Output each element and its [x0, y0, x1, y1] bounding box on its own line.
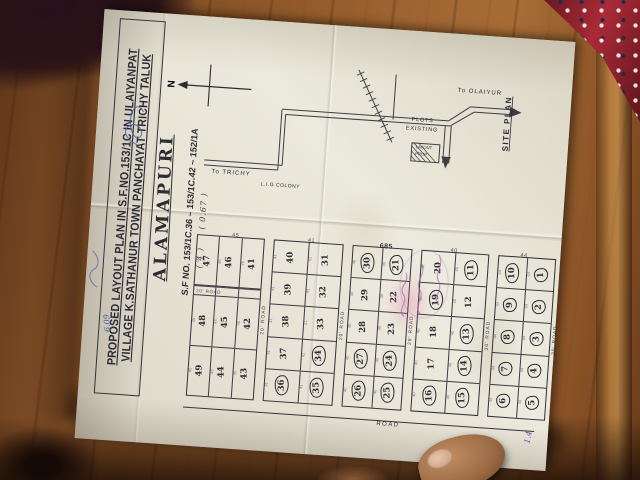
plot-dimension: 45 — [192, 318, 197, 323]
plot-cell-38: 4138 — [268, 305, 304, 339]
internal-road — [216, 287, 238, 298]
plot-number-49: 49 — [193, 362, 205, 380]
plot-cell-3: 443 — [521, 322, 551, 356]
plot-cell-25: 4025 — [372, 377, 403, 410]
plot-number-circled-35: 35 — [309, 378, 323, 398]
plot-cell-10: 4410 — [497, 256, 527, 290]
plot-number-47: 47 — [201, 251, 213, 269]
plot-number-circled-14: 14 — [457, 356, 471, 376]
plot-dimension: 44 — [519, 368, 524, 373]
plot-dimension: 41 — [303, 320, 308, 325]
plot-dimension: 44 — [489, 398, 494, 403]
edge-dimension: 685 — [379, 243, 393, 251]
plot-number-38: 38 — [280, 312, 292, 330]
plot-cell-39: 4139 — [270, 273, 306, 307]
plot-cell-16: 4016 — [411, 379, 446, 412]
road-label: 30' ROAD — [552, 325, 559, 355]
railway-tick — [363, 84, 370, 88]
railway-tick — [387, 137, 394, 141]
edge-dimension: 45 — [232, 233, 240, 239]
layout-plan-paper: PROPOSED LAYOUT PLAN IN S.F.NO.153/1C IN… — [75, 9, 576, 471]
blue-signature-squiggle — [119, 97, 153, 151]
plot-dimension: 40 — [448, 363, 453, 368]
plot-number-18: 18 — [427, 323, 439, 341]
plot-number-circled-6: 6 — [496, 394, 510, 408]
north-letter: N — [166, 80, 177, 88]
plot-number-circled-27: 27 — [353, 349, 367, 369]
plot-number-37: 37 — [278, 345, 290, 363]
plot-dimension: 41 — [273, 254, 278, 259]
plot-number-12: 12 — [463, 293, 475, 311]
plot-dimension: 44 — [526, 271, 531, 276]
plot-number-circled-26: 26 — [351, 381, 365, 401]
plot-dimension: 41 — [308, 256, 313, 261]
plot-cell-45: 4545 — [213, 297, 238, 349]
plot-cell-26: 4026 — [342, 374, 373, 407]
existing-plots-label: EXISTING — [406, 125, 438, 133]
plot-cell-42: 4542 — [235, 298, 260, 350]
plot-cell-36: 4136 — [264, 369, 300, 402]
plot-number-39: 39 — [282, 280, 294, 298]
plot-block-1: 4549454820' ROAD454745444545454645434542… — [186, 234, 265, 400]
plot-number-circled-25: 25 — [380, 383, 394, 403]
plot-dimension: 40 — [377, 326, 382, 331]
plot-number-circled-4: 4 — [527, 364, 541, 378]
plot-grid: 4549454820' ROAD454745444545454645434542… — [186, 234, 565, 421]
internal-road — [238, 288, 260, 299]
plot-number-circled-36: 36 — [275, 376, 289, 396]
plot-number-circled-11: 11 — [464, 260, 478, 280]
plot-number-circled-9: 9 — [503, 298, 517, 312]
plot-number-circled-8: 8 — [501, 330, 515, 344]
plot-cell-32: 4132 — [305, 275, 341, 309]
railway-tick — [357, 71, 364, 75]
plot-dimension: 40 — [343, 388, 348, 393]
plot-number-28: 28 — [356, 318, 368, 336]
plot-number-circled-13: 13 — [460, 324, 474, 344]
railway-tick — [372, 104, 379, 108]
plot-cell-29: 4029 — [349, 278, 380, 312]
plot-number-circled-10: 10 — [505, 263, 519, 283]
plot-cell-47: 4547 — [195, 235, 220, 287]
plot-cell-44: 4544 — [209, 347, 234, 398]
plot-cell-28: 4028 — [347, 310, 378, 344]
plot-dimension: 40 — [375, 358, 380, 363]
plot-cell-6: 446 — [488, 385, 518, 418]
prop-layout-label: LAYOUT — [416, 144, 433, 150]
plot-cell-15: 4015 — [445, 382, 480, 415]
plot-cell-43: 4543 — [231, 349, 256, 400]
plot-dimension: 44 — [491, 366, 496, 371]
plot-number-42: 42 — [241, 315, 253, 333]
railway-tick — [360, 78, 367, 82]
road-label: 20' ROAD — [260, 305, 267, 335]
plot-number-40: 40 — [285, 248, 297, 266]
plot-cell-4: 444 — [519, 355, 549, 389]
plot-number-44: 44 — [216, 363, 228, 381]
plot-number-circled-15: 15 — [455, 388, 469, 408]
plot-number-circled-30: 30 — [360, 253, 374, 273]
railway-tick — [366, 91, 373, 95]
plot-cell-8: 448 — [493, 320, 523, 354]
plot-cell-2: 442 — [523, 290, 553, 324]
plot-dimension: 45 — [240, 261, 245, 266]
plot-number-46: 46 — [223, 253, 235, 271]
plot-number-45: 45 — [219, 313, 231, 331]
blue-swirl — [85, 248, 104, 289]
plot-dimension: 41 — [305, 288, 310, 293]
plot-dimension: 40 — [350, 291, 355, 296]
plot-cell-31: 4131 — [307, 243, 343, 277]
plot-dimension: 41 — [264, 382, 269, 387]
to-trichy-label: To TRICHY — [211, 169, 251, 178]
plot-cell-48: 4548 — [190, 295, 215, 347]
railway-tick — [384, 130, 391, 134]
plot-dimension: 41 — [266, 350, 271, 355]
plot-dimension: 40 — [372, 390, 377, 395]
plot-dimension: 45 — [188, 368, 193, 373]
railway-tick — [381, 124, 388, 128]
hatch-line — [411, 156, 416, 161]
plot-dimension: 45 — [233, 371, 238, 376]
plot-dimension: 40 — [414, 361, 419, 366]
plot-number-circled-24: 24 — [383, 351, 397, 371]
plot-cell-35: 4135 — [298, 371, 334, 404]
plot-number-41: 41 — [246, 255, 258, 273]
plot-cell-1: 441 — [525, 258, 555, 292]
plot-dimension: 44 — [517, 400, 522, 405]
plot-number-17: 17 — [425, 355, 437, 373]
purple-stamp-writing — [393, 242, 462, 326]
plot-cell-5: 445 — [517, 387, 547, 420]
plot-number-31: 31 — [319, 251, 331, 269]
plot-number-circled-34: 34 — [311, 346, 325, 366]
internal-road: 20' ROAD — [194, 285, 216, 296]
plot-cell-34: 4134 — [300, 339, 336, 373]
plot-cell-49: 4549 — [187, 346, 212, 397]
plot-dimension: 44 — [522, 336, 527, 341]
plot-cell-24: 4024 — [374, 344, 405, 378]
plot-number-29: 29 — [359, 286, 371, 304]
plot-dimension: 44 — [524, 304, 529, 309]
plot-dimension: 41 — [301, 353, 306, 358]
site-location-sketch: To TRICHY L.I.G COLONY To OLAIYUR EXISTI… — [188, 18, 541, 217]
margin-note-top: 6.09 — [102, 314, 112, 332]
plot-dimension: 40 — [352, 259, 357, 264]
plot-number-48: 48 — [197, 312, 209, 330]
plot-dimension: 44 — [493, 334, 498, 339]
plot-cell-17: 4017 — [413, 347, 448, 381]
plot-dimension: 40 — [348, 324, 353, 329]
plot-number-circled-5: 5 — [524, 396, 538, 410]
edge-dimension: 41 — [308, 238, 316, 244]
to-olaiyur-label: To OLAIYUR — [458, 88, 503, 97]
plot-cell-37: 4137 — [266, 337, 302, 371]
edge-dimension: 44 — [520, 253, 528, 259]
plot-cell-9: 449 — [495, 288, 525, 322]
plot-number-circled-1: 1 — [533, 268, 547, 282]
plot-cell-7: 447 — [490, 353, 520, 387]
road-label: 30' ROAD — [485, 321, 492, 351]
railway-tick — [369, 98, 376, 102]
thumbnail — [424, 445, 456, 473]
plot-number-circled-3: 3 — [529, 332, 543, 346]
plot-dimension: 40 — [445, 395, 450, 400]
plot-number-circled-2: 2 — [531, 300, 545, 314]
plot-number-circled-7: 7 — [498, 362, 512, 376]
plot-block-2: 4136413741384139414041354134413341324131 — [263, 239, 344, 405]
plot-dimension: 40 — [412, 393, 417, 398]
railway-tick — [375, 111, 382, 115]
plot-cell-40: 4140 — [273, 240, 309, 274]
plot-dimension: 44 — [498, 270, 503, 275]
plot-dimension: 41 — [269, 318, 274, 323]
plot-dimension: 40 — [379, 294, 384, 299]
plot-dimension: 41 — [299, 385, 304, 390]
plot-dimension: 40 — [450, 331, 455, 336]
plot-dimension: 44 — [495, 302, 500, 307]
plot-dimension: 45 — [196, 258, 201, 263]
prop-layout-label: PROP. — [415, 151, 428, 157]
plot-number-43: 43 — [238, 365, 250, 383]
plot-number-circled-16: 16 — [422, 386, 436, 406]
plot-cell-30: 4030 — [351, 246, 382, 280]
plot-number-32: 32 — [317, 283, 329, 301]
plot-cell-46: 4546 — [217, 237, 242, 289]
plot-dimension: 41 — [271, 286, 276, 291]
plot-number-33: 33 — [314, 315, 326, 333]
plot-cell-27: 4027 — [345, 342, 376, 376]
plot-cell-33: 4133 — [303, 307, 339, 341]
plot-dimension: 45 — [236, 321, 241, 326]
plot-cell-14: 4014 — [447, 350, 482, 384]
colony-label: L.I.G COLONY — [261, 181, 301, 190]
plot-cell-41: 4541 — [239, 238, 264, 290]
plot-dimension: 40 — [381, 261, 386, 266]
plot-dimension: 40 — [345, 356, 350, 361]
photo-of-layout-plan: PROPOSED LAYOUT PLAN IN S.F.NO.153/1C IN… — [0, 0, 640, 480]
site-plan-title: SITE PLAN — [501, 96, 514, 152]
road-label: 20' ROAD — [339, 311, 346, 341]
